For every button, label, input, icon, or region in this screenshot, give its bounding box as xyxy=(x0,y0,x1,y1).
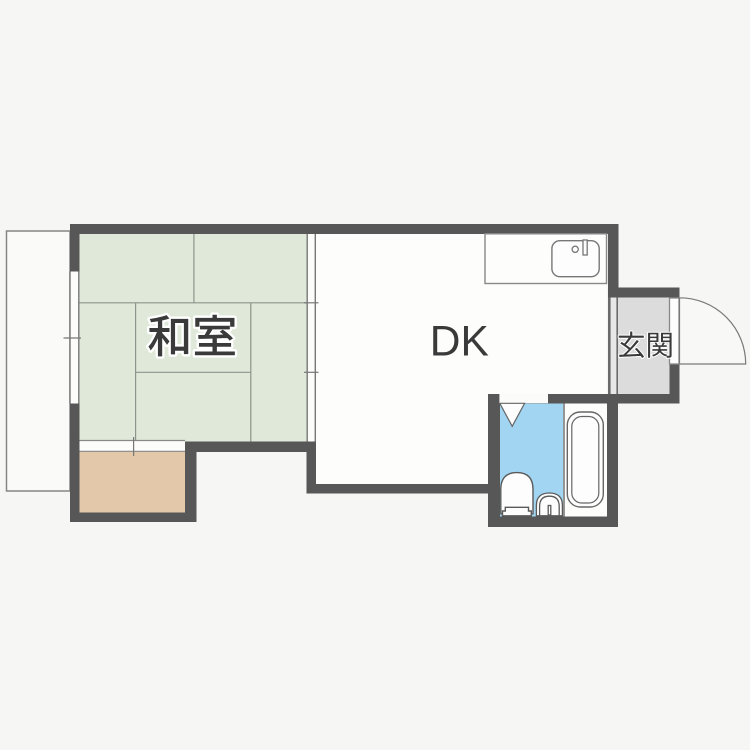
svg-text:DK: DK xyxy=(430,318,489,365)
